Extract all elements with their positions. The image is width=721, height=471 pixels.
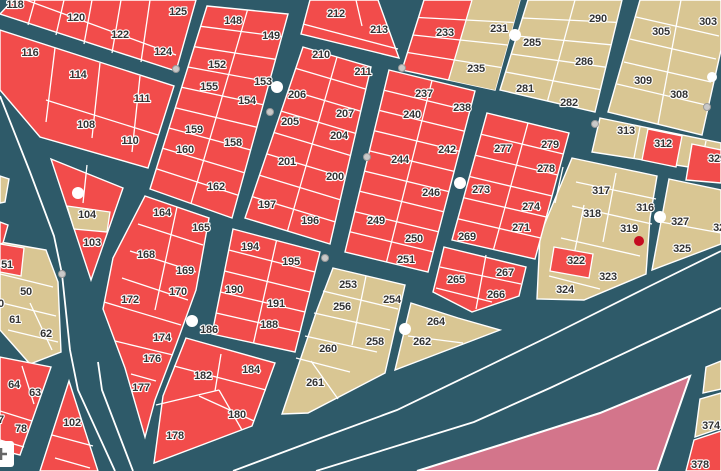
- svg-text:325: 325: [673, 243, 691, 255]
- svg-text:186: 186: [200, 324, 218, 336]
- svg-text:246: 246: [422, 187, 440, 199]
- svg-text:108: 108: [77, 119, 95, 131]
- svg-text:162: 162: [207, 181, 225, 193]
- svg-text:250: 250: [405, 233, 423, 245]
- svg-text:194: 194: [241, 241, 260, 253]
- svg-text:178: 178: [166, 430, 184, 442]
- svg-text:120: 120: [67, 12, 85, 24]
- svg-text:378: 378: [691, 459, 709, 471]
- svg-text:258: 258: [366, 336, 384, 348]
- svg-text:233: 233: [436, 27, 454, 39]
- svg-text:240: 240: [403, 109, 421, 121]
- svg-text:206: 206: [288, 89, 306, 101]
- svg-text:278: 278: [537, 163, 555, 175]
- svg-text:238: 238: [453, 102, 471, 114]
- svg-text:281: 281: [516, 83, 534, 95]
- svg-text:212: 212: [327, 8, 345, 20]
- svg-text:264: 264: [427, 316, 446, 328]
- svg-text:256: 256: [333, 301, 351, 313]
- svg-text:290: 290: [589, 13, 607, 25]
- svg-text:305: 305: [652, 26, 670, 38]
- svg-text:164: 164: [153, 207, 172, 219]
- svg-text:317: 317: [592, 185, 610, 197]
- svg-text:155: 155: [200, 81, 218, 93]
- svg-text:324: 324: [556, 284, 575, 296]
- svg-text:251: 251: [397, 254, 415, 266]
- svg-text:309: 309: [634, 75, 652, 87]
- svg-text:64: 64: [8, 379, 21, 391]
- svg-text:231: 231: [490, 23, 508, 35]
- svg-text:286: 286: [575, 56, 593, 68]
- svg-text:196: 196: [301, 215, 319, 227]
- svg-text:125: 125: [169, 6, 187, 18]
- svg-text:114: 114: [69, 69, 87, 81]
- svg-text:124: 124: [154, 46, 173, 58]
- svg-text:7: 7: [0, 414, 4, 426]
- svg-text:63: 63: [29, 387, 41, 399]
- svg-text:326: 326: [713, 222, 721, 234]
- svg-text:210: 210: [312, 49, 330, 61]
- svg-text:110: 110: [121, 135, 138, 147]
- svg-text:200: 200: [326, 171, 344, 183]
- svg-text:197: 197: [258, 199, 276, 211]
- svg-text:51: 51: [1, 259, 13, 271]
- svg-text:116: 116: [21, 47, 38, 59]
- svg-text:205: 205: [281, 116, 299, 128]
- svg-text:188: 188: [260, 319, 278, 331]
- svg-text:249: 249: [367, 215, 385, 227]
- svg-text:169: 169: [176, 265, 194, 277]
- svg-text:318: 318: [583, 208, 601, 220]
- svg-text:273: 273: [472, 184, 490, 196]
- svg-text:271: 271: [512, 222, 530, 234]
- svg-text:327: 327: [671, 216, 689, 228]
- svg-text:374: 374: [702, 420, 721, 432]
- svg-text:149: 149: [262, 30, 280, 42]
- svg-text:62: 62: [40, 328, 52, 340]
- svg-text:102: 102: [63, 417, 81, 429]
- svg-text:266: 266: [487, 289, 505, 301]
- svg-text:152: 152: [208, 59, 226, 71]
- svg-text:312: 312: [654, 138, 672, 150]
- svg-text:176: 176: [143, 353, 161, 365]
- svg-text:154: 154: [238, 95, 257, 107]
- svg-text:165: 165: [192, 222, 210, 234]
- svg-text:329: 329: [708, 153, 721, 165]
- svg-text:213: 213: [370, 24, 388, 36]
- svg-text:190: 190: [225, 284, 243, 296]
- svg-text:60: 60: [0, 298, 4, 310]
- svg-text:168: 168: [137, 249, 155, 261]
- svg-text:261: 261: [306, 377, 324, 389]
- svg-text:265: 265: [447, 274, 465, 286]
- svg-text:308: 308: [670, 89, 688, 101]
- svg-text:323: 323: [599, 271, 617, 283]
- svg-text:50: 50: [20, 286, 32, 298]
- svg-text:160: 160: [176, 144, 194, 156]
- svg-text:282: 282: [560, 97, 578, 109]
- svg-text:122: 122: [111, 29, 129, 41]
- svg-text:103: 103: [83, 237, 101, 249]
- svg-text:180: 180: [228, 409, 246, 421]
- svg-text:78: 78: [15, 423, 27, 435]
- svg-text:274: 274: [522, 201, 541, 213]
- svg-text:158: 158: [224, 137, 242, 149]
- svg-text:153: 153: [254, 76, 272, 88]
- svg-text:170: 170: [169, 286, 187, 298]
- svg-text:262: 262: [413, 336, 431, 348]
- svg-text:118: 118: [6, 0, 23, 11]
- svg-text:191: 191: [267, 298, 285, 310]
- svg-text:111: 111: [134, 93, 151, 105]
- svg-text:235: 235: [467, 63, 485, 75]
- svg-text:303: 303: [699, 16, 717, 28]
- svg-text:253: 253: [339, 279, 357, 291]
- svg-text:204: 204: [330, 130, 349, 142]
- svg-text:174: 174: [153, 332, 172, 344]
- svg-text:313: 313: [617, 125, 635, 137]
- svg-text:316: 316: [636, 202, 654, 214]
- svg-text:172: 172: [121, 294, 139, 306]
- svg-text:260: 260: [319, 343, 337, 355]
- svg-text:319: 319: [620, 223, 638, 235]
- svg-text:244: 244: [391, 154, 410, 166]
- svg-text:159: 159: [185, 124, 203, 136]
- svg-text:61: 61: [9, 314, 21, 326]
- svg-text:277: 277: [494, 143, 512, 155]
- svg-text:182: 182: [194, 370, 212, 382]
- svg-text:184: 184: [242, 364, 261, 376]
- svg-text:104: 104: [78, 209, 97, 221]
- svg-text:211: 211: [354, 66, 371, 78]
- svg-text:267: 267: [496, 267, 514, 279]
- svg-text:285: 285: [523, 37, 541, 49]
- svg-text:177: 177: [132, 382, 150, 394]
- svg-text:322: 322: [567, 255, 585, 267]
- svg-text:195: 195: [282, 256, 300, 268]
- svg-text:279: 279: [541, 139, 559, 151]
- svg-text:207: 207: [336, 108, 354, 120]
- svg-text:242: 242: [438, 144, 456, 156]
- svg-text:269: 269: [458, 231, 476, 243]
- svg-text:237: 237: [415, 88, 433, 100]
- svg-text:254: 254: [383, 294, 402, 306]
- svg-text:148: 148: [224, 15, 242, 27]
- svg-text:201: 201: [278, 156, 296, 168]
